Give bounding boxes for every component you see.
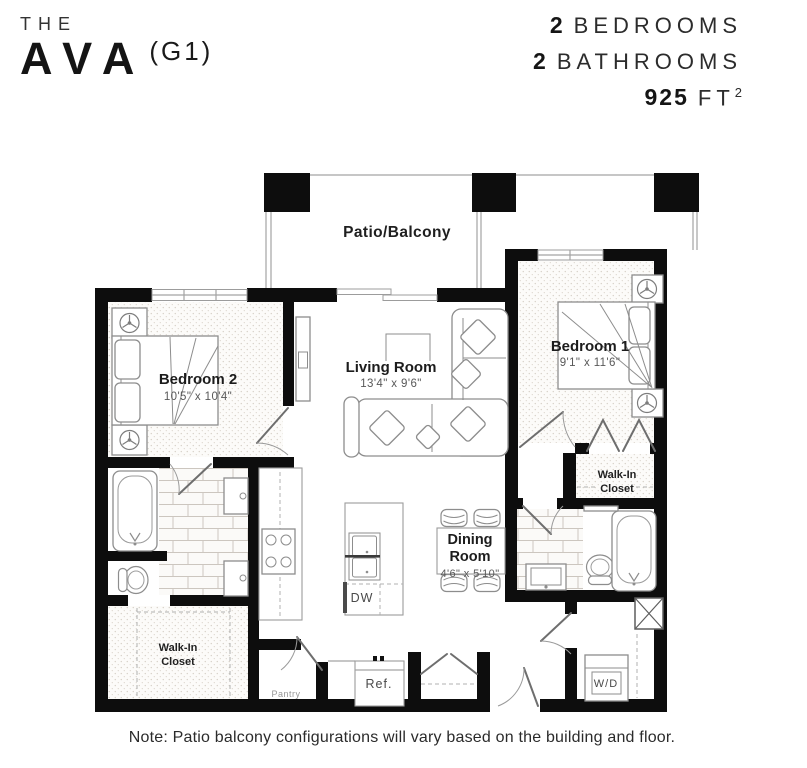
entry-door — [498, 668, 538, 706]
svg-text:Walk-In: Walk-In — [598, 469, 637, 481]
laundry: W/D — [585, 598, 663, 701]
dining-dims: 4'6" x 5'10" — [440, 568, 499, 580]
vanity1 — [526, 564, 566, 590]
footnote: Note: Patio balcony configurations will … — [129, 729, 675, 746]
patio-columns — [264, 173, 699, 212]
floorplan-drawing: Patio/Balcony — [0, 0, 807, 768]
wd-label: W/D — [594, 678, 618, 690]
bedroom1-label: Bedroom 1 — [551, 338, 629, 355]
kitchen: DW Ref. Pantry — [259, 468, 404, 706]
floorplan-page: THE AVA (G1) 2 BEDROOMS 2 BATHROOMS 925 … — [0, 0, 807, 768]
bedroom1-window — [538, 250, 603, 260]
toilet-icon — [587, 555, 614, 585]
vanity2a — [224, 478, 248, 514]
living-dims: 13'4" x 9'6" — [360, 378, 421, 390]
chair-icon — [474, 510, 500, 527]
bedroom2-dims: 10'5" x 10'4" — [164, 391, 232, 403]
ref-label: Ref. — [366, 677, 393, 691]
chair-icon — [441, 510, 467, 527]
dining-room: Dining Room 4'6" x 5'10" — [437, 510, 505, 592]
patio-label: Patio/Balcony — [343, 224, 451, 241]
living-label: Living Room — [346, 359, 437, 376]
tv-bracket — [386, 334, 430, 361]
bathtub-icon — [612, 511, 656, 591]
svg-text:Walk-In: Walk-In — [159, 642, 198, 654]
dining-label-2: Room — [449, 549, 490, 565]
lamp-icon — [638, 394, 657, 413]
toilet-icon — [119, 567, 149, 594]
stove — [262, 529, 295, 574]
bedroom2-label: Bedroom 2 — [159, 371, 237, 388]
svg-text:Closet: Closet — [600, 483, 634, 495]
vanity2b — [224, 561, 248, 596]
living-room: Living Room 13'4" x 9'6" — [296, 309, 508, 457]
dw-label: DW — [351, 591, 374, 605]
patio-sliding-door — [337, 289, 437, 301]
lamp-icon — [638, 280, 657, 299]
lamp-icon — [120, 314, 139, 333]
entry-closet-doors — [421, 654, 477, 684]
lamp-icon — [120, 431, 139, 450]
bedroom2-window — [152, 290, 247, 301]
shaft — [635, 598, 663, 629]
towel-bar — [584, 506, 618, 511]
bathtub-icon — [113, 471, 157, 551]
dishwasher-front — [343, 582, 347, 613]
tv-console — [296, 317, 310, 401]
laundry-door — [541, 613, 571, 654]
bedroom1-dims: 9'1" x 11'6" — [560, 357, 621, 369]
svg-text:Closet: Closet — [161, 656, 195, 668]
dining-label-1: Dining — [447, 532, 492, 548]
pantry-label: Pantry — [271, 689, 300, 699]
